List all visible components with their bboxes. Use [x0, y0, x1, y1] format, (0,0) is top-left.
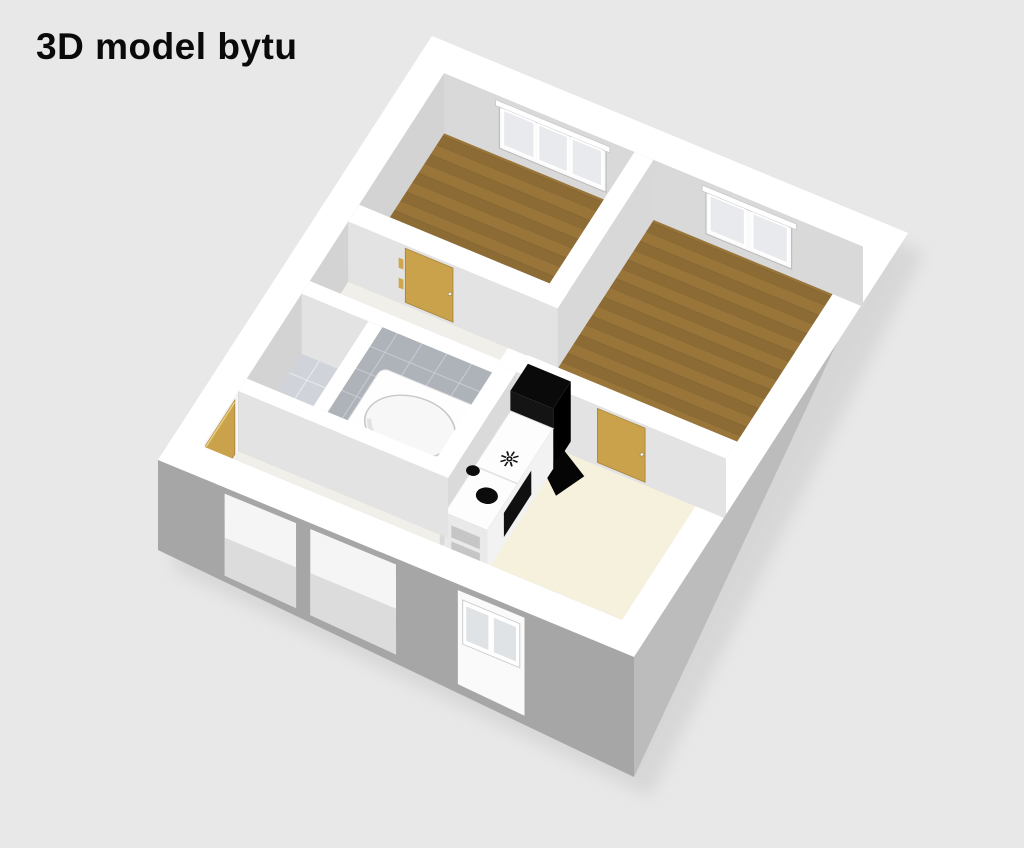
page: 3D model bytu — [0, 0, 1024, 848]
apartment-3d-view — [0, 0, 1024, 848]
